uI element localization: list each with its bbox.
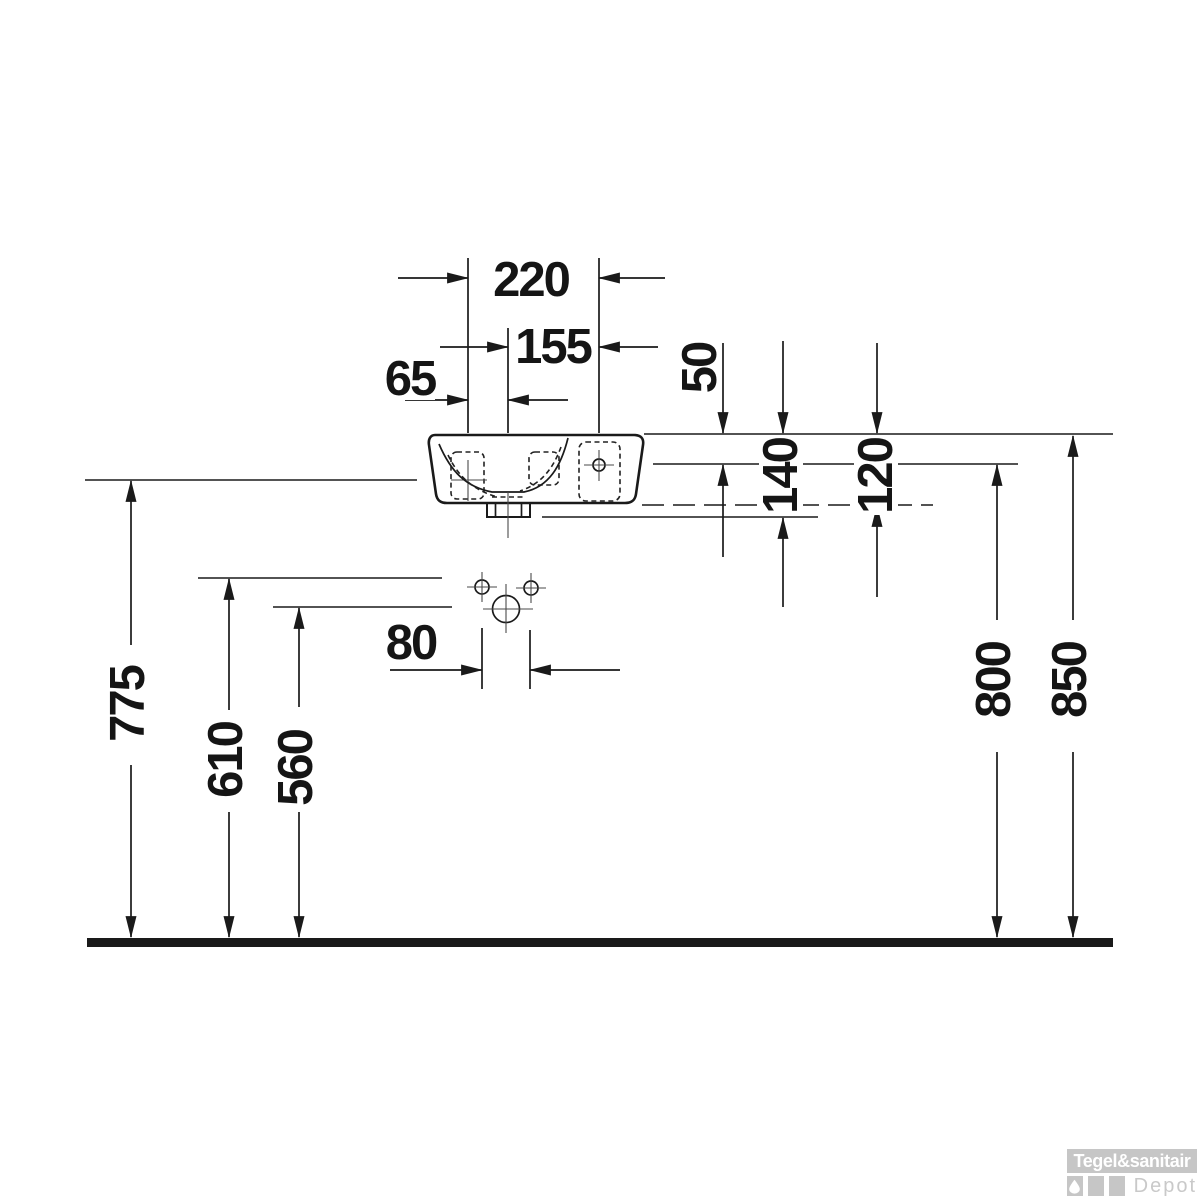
watermark-drop-tile — [1067, 1176, 1083, 1196]
dim-label-800: 800 — [967, 641, 1021, 718]
watermark-row: Depot — [1067, 1176, 1197, 1196]
dimension-heights: 775 610 560 800 850 — [101, 436, 1097, 937]
technical-drawing-page: 220 155 65 50 140 120 80 — [0, 0, 1200, 1200]
watermark-tile-3 — [1109, 1176, 1125, 1196]
dim-label-80: 80 — [386, 616, 437, 670]
dim-label-850: 850 — [1043, 641, 1097, 718]
watermark: Tegel&sanitair Depot — [1067, 1149, 1197, 1196]
watermark-tile-2 — [1088, 1176, 1104, 1196]
dim-label-220: 220 — [493, 253, 570, 307]
watermark-brand: Tegel&sanitair — [1067, 1149, 1197, 1173]
dim-label-775: 775 — [101, 665, 155, 742]
dim-label-120: 120 — [849, 437, 903, 514]
basin-front-view — [429, 435, 643, 538]
dim-label-560: 560 — [269, 729, 323, 806]
floor-line — [87, 938, 1113, 947]
watermark-sub: Depot — [1134, 1176, 1197, 1196]
dimension-depths-right: 50 140 120 — [673, 341, 903, 607]
water-drop-icon — [1068, 1179, 1081, 1194]
dim-label-50: 50 — [673, 342, 727, 393]
dimension-widths-top: 220 155 65 — [385, 253, 665, 433]
dimension-drawing-svg: 220 155 65 50 140 120 80 — [0, 0, 1200, 1200]
basin-outline — [429, 435, 643, 503]
dim-label-610: 610 — [199, 721, 253, 798]
fixing-holes-and-drain: 80 — [386, 572, 620, 689]
dim-label-65: 65 — [385, 352, 436, 406]
dim-label-140: 140 — [754, 437, 808, 514]
dim-label-155: 155 — [515, 320, 592, 374]
